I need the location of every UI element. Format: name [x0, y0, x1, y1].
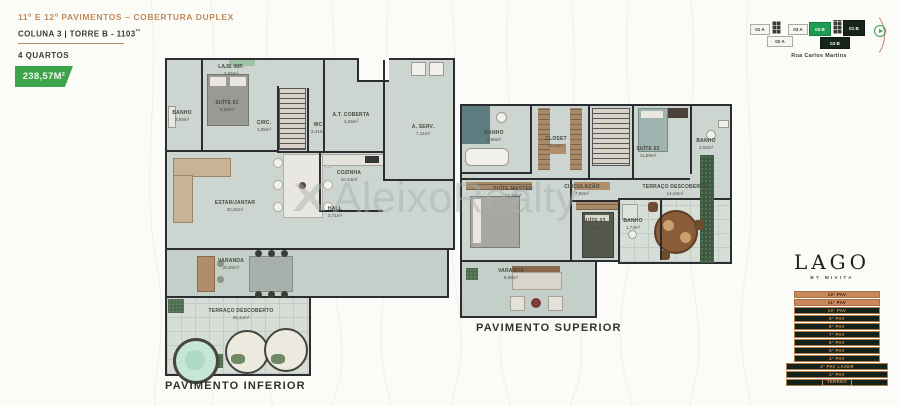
plate	[663, 220, 674, 231]
room-label-circulacao: CIRCULAÇÃO7,59m²	[556, 184, 608, 196]
room-label-banho: BANHO3,59m²	[165, 110, 199, 122]
unit-01b[interactable]: 01 B	[843, 20, 865, 36]
wall	[383, 60, 385, 180]
floor-bar-8[interactable]: 8º PAV	[794, 323, 880, 330]
plan-superior: BANHO6,99m² CLOSET10,52m² SUÍTE 0211,59m…	[460, 100, 736, 340]
chair	[273, 202, 283, 212]
plate	[680, 232, 691, 243]
pillow	[641, 111, 663, 118]
wall	[307, 88, 309, 152]
kitchen-counter	[322, 154, 384, 166]
floor-bar-7[interactable]: 7º PAV	[794, 331, 880, 338]
chair	[273, 180, 283, 190]
north-arrow-icon	[874, 25, 886, 37]
floor-bar-3-lazer[interactable]: 3º PAV LAZER	[786, 363, 888, 370]
wall	[530, 106, 532, 174]
pillow	[210, 77, 226, 86]
unit-01a[interactable]: 01 A	[750, 24, 770, 35]
bathtub	[465, 148, 509, 166]
unit-03b-selected[interactable]: 03 B	[809, 22, 831, 36]
toilet	[628, 230, 637, 239]
brand-logo: LAGO BY MIVITA	[792, 250, 872, 281]
wall	[383, 179, 453, 181]
vase	[299, 182, 306, 189]
stairs	[279, 88, 306, 150]
sofa-chaise	[173, 175, 193, 223]
area-badge: 238,57M²	[15, 66, 73, 87]
cooktop	[365, 156, 379, 163]
room-label-terraco: TERRAÇO DESCOBERTO25,44m²	[199, 308, 283, 320]
elevator-core-icon	[772, 21, 781, 34]
side-table	[531, 298, 541, 308]
room-label-circ: CIRC.1,95m²	[251, 120, 277, 132]
pillow	[230, 77, 246, 86]
room-label-cozinha: COZINHA10,44m²	[323, 170, 375, 182]
room-label-suite-master: SUÍTE MASTER17,76m²	[484, 186, 542, 198]
wall	[323, 60, 325, 152]
stool	[255, 250, 262, 257]
floor-bar-2[interactable]: 2º PAV	[786, 371, 888, 378]
floor-bar-6[interactable]: 6º PAV	[794, 339, 880, 346]
washer	[429, 62, 444, 76]
stool	[281, 250, 288, 257]
brand-logo-sub: BY MIVITA	[792, 276, 872, 281]
room-label-laje-imp: LAJE IMP.3,05m²	[201, 64, 261, 76]
room-label-terraco-sup: TERRAÇO DESCOBERTO14,04m²	[642, 184, 708, 196]
wall	[277, 151, 383, 153]
round-daybed	[264, 328, 308, 372]
page-title: 11º E 12º PAVIMENTOS – COBERTURA DUPLEX	[18, 12, 234, 22]
room-label-estar-jantar: ESTAR/JANTAR32,01m²	[203, 200, 267, 212]
stool	[548, 296, 563, 311]
stool	[510, 296, 525, 311]
toilet	[496, 112, 507, 123]
caption-pavimento-inferior: PAVIMENTO INFERIOR	[165, 380, 306, 392]
room-label-hall: HALL3,71m²	[317, 206, 353, 218]
stool	[255, 291, 262, 298]
suite03-wardrobe	[576, 202, 618, 210]
unit-selector: 01 A 03 A 03 B 01 B 02 A 02 B Rua Carlos…	[748, 16, 890, 62]
suite02-desk	[668, 108, 688, 118]
wall	[588, 106, 590, 178]
wall	[319, 152, 321, 212]
pillow	[473, 199, 481, 243]
floor-bar-4[interactable]: 4º PAV	[794, 355, 880, 362]
plant	[466, 268, 478, 280]
hedge	[700, 155, 714, 263]
wall	[167, 150, 277, 152]
cushion	[271, 354, 285, 364]
wall	[277, 86, 279, 152]
wall	[570, 200, 620, 202]
elevator-core-icon	[833, 20, 842, 34]
washer	[411, 62, 426, 76]
terrace-chair	[648, 202, 658, 212]
room-label-banho3-sup: BANHO1,74m²	[616, 218, 650, 230]
plan-inferior: LAJE IMP.3,05m² BANHO3,59m² SUÍTE 019,55…	[165, 58, 457, 392]
varanda-table	[249, 256, 293, 292]
room-label-banho-sup: BANHO6,99m²	[474, 130, 514, 142]
room-label-suite03: SUÍTE 0313,56m²	[572, 218, 616, 230]
room-label-closet: CLOSET10,52m²	[534, 136, 578, 148]
master-bed	[470, 196, 520, 248]
room-label-suite02: SUÍTE 0211,59m²	[628, 146, 668, 158]
round-daybed	[225, 330, 269, 374]
floor-bar-11[interactable]: 11º PAV	[794, 299, 880, 306]
sink	[718, 120, 729, 128]
footnote-marker: **	[136, 29, 141, 35]
wall	[462, 172, 530, 174]
terrace-chair	[694, 220, 704, 230]
header: 11º E 12º PAVIMENTOS – COBERTURA DUPLEX …	[18, 12, 234, 60]
floor-bar-10[interactable]: 10º PAV	[794, 307, 880, 314]
stool	[268, 250, 275, 257]
floor-bar-9[interactable]: 9º PAV	[794, 315, 880, 322]
floor-stack: 12º PAV 11º PAV 10º PAV 9º PAV 8º PAV 7º…	[786, 291, 888, 387]
water-swirl	[185, 350, 205, 370]
unit-03a[interactable]: 03 A	[788, 24, 808, 35]
wall	[462, 178, 690, 180]
brand-logo-name: LAGO	[792, 250, 872, 274]
room-label-banho2-sup: BANHO3,08m²	[688, 138, 724, 150]
cushion	[231, 354, 245, 364]
room-label-at-coberta: A.T. COBERTA4,26m²	[325, 112, 377, 124]
caption-pavimento-superior: PAVIMENTO SUPERIOR	[476, 322, 622, 334]
accent-rule	[18, 43, 124, 44]
unit-subtitle: COLUNA 3 | TORRE B - 1103**	[18, 29, 234, 39]
room-label-a-serv: A. SERV.7,41m²	[397, 124, 449, 136]
room-label-suite01: SUÍTE 019,55m²	[207, 100, 247, 112]
unit-02b[interactable]: 02 B	[820, 37, 850, 49]
room-label-varanda-sup: VARANDA8,56m²	[490, 268, 532, 280]
floor-bar-12[interactable]: 12º PAV	[794, 291, 880, 298]
street-label: Rua Carlos Martins	[748, 53, 890, 59]
bedrooms-label: 4 QUARTOS	[18, 51, 234, 60]
stool	[268, 291, 275, 298]
stool	[217, 276, 224, 283]
jacuzzi	[173, 338, 219, 384]
floor-bar-5[interactable]: 5º PAV	[794, 347, 880, 354]
room-label-varanda: VARANDA20,82m²	[209, 258, 253, 270]
floor-bar-terreo[interactable]: TÉRREO	[786, 379, 888, 386]
chair	[273, 158, 283, 168]
wall	[632, 106, 634, 178]
stairs	[592, 108, 630, 166]
unit-02a[interactable]: 02 A	[767, 36, 793, 47]
wall	[660, 200, 662, 260]
planter	[168, 299, 184, 313]
stool	[281, 291, 288, 298]
